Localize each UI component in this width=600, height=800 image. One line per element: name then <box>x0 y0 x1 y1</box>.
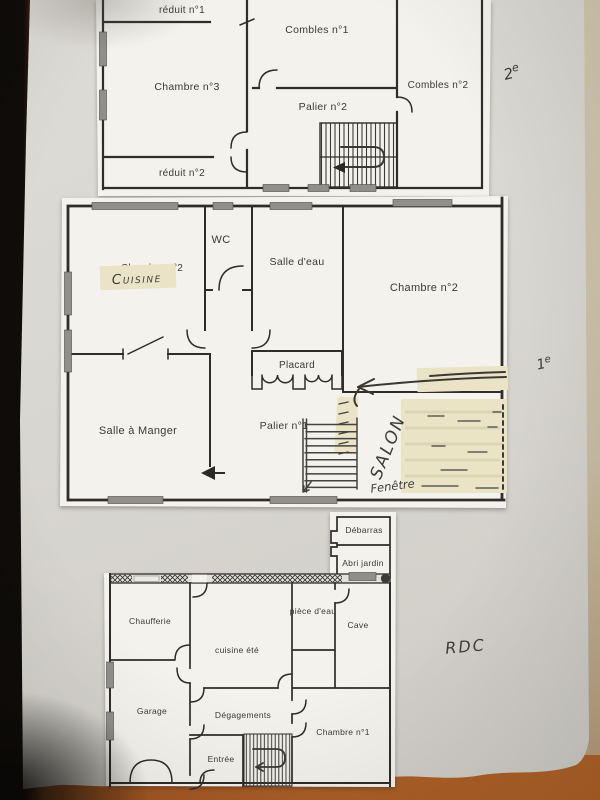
room-label-chambre-n3: Chambre n°3 <box>154 81 219 93</box>
room-label-reduit-n1: réduit n°1 <box>159 5 205 16</box>
room-label-cuisine-ete: cuisine été <box>215 645 259 655</box>
corner-dot <box>381 574 390 583</box>
door-gap-top-wall <box>192 575 207 583</box>
room-label-salle-a-manger: Salle à Manger <box>99 425 177 437</box>
room-label-abri-jardin: Abri jardin <box>342 558 384 568</box>
room-label-degagements: Dégagements <box>215 710 271 720</box>
room-label-chaufferie: Chaufferie <box>129 616 171 626</box>
floor-plan-second-floor: réduit n°1 Combles n°1 Chambre n°3 Combl… <box>96 0 491 196</box>
annotation-rdc-base: RDC <box>444 635 486 657</box>
floor-plan-first-floor: Chambre n°2 <box>60 196 508 508</box>
room-label-wc: WC <box>212 234 231 246</box>
window-gap-top-wall <box>134 576 159 582</box>
room-label-palier-n1: Palier n°1 <box>260 420 309 432</box>
handwritten-label-cuisine: Cuisine <box>112 270 163 288</box>
room-label-chambre-n1: Chambre n°1 <box>316 727 369 737</box>
room-label-combles-n1: Combles n°1 <box>285 24 349 36</box>
room-label-debarras: Débarras <box>345 525 382 535</box>
annotation-ground-floor: RDC <box>444 635 486 657</box>
room-label-cave: Cave <box>347 620 368 630</box>
staircase-second-floor <box>320 123 397 187</box>
floor-plans-drawing: réduit n°1 Combles n°1 Chambre n°3 Combl… <box>0 0 600 800</box>
staircase-ground-floor <box>244 734 292 786</box>
room-label-combles-n2: Combles n°2 <box>408 80 469 91</box>
room-label-palier-n2: Palier n°2 <box>299 101 348 113</box>
room-label-placard: Placard <box>279 360 315 371</box>
room-label-salle-deau: Salle d'eau <box>270 256 325 268</box>
floor-plan-photo-scene: réduit n°1 Combles n°1 Chambre n°3 Combl… <box>0 0 600 800</box>
room-label-chambre-n2: Chambre n°2 <box>390 282 458 294</box>
room-label-reduit-n2: réduit n°2 <box>159 168 205 179</box>
room-label-piece-deau: pièce d'eau <box>290 606 337 616</box>
room-label-entree: Entrée <box>208 754 235 764</box>
bottom-left-shadow <box>0 690 150 800</box>
